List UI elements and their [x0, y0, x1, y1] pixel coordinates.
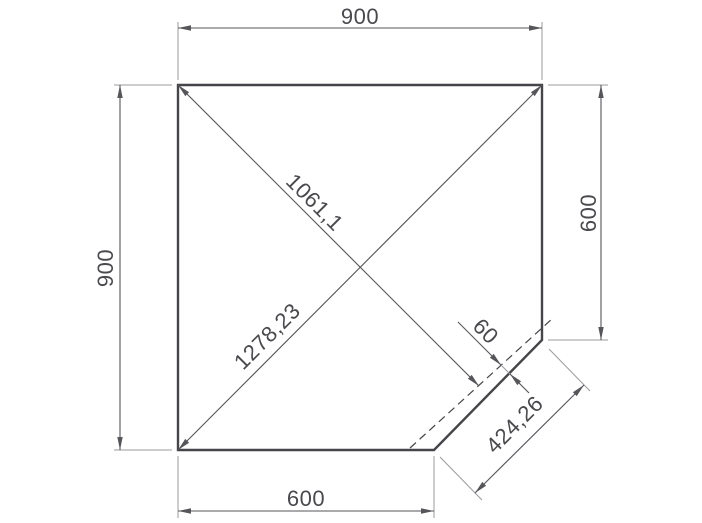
dim-left-height-label: 900 [93, 249, 118, 287]
extension-line [549, 349, 590, 391]
arrowhead [117, 437, 122, 450]
dim-chamfer-offset: 60 [458, 313, 529, 393]
arrowhead [178, 25, 191, 30]
arrowhead [573, 383, 586, 396]
drawing-page: 900 900 600 600 [0, 0, 702, 523]
arrowhead [473, 482, 486, 495]
arrowhead [468, 375, 481, 388]
dim-chamfer-offset-label: 60 [468, 313, 504, 349]
arrowhead [421, 508, 434, 513]
dimension-line [178, 85, 479, 386]
part-outline [178, 85, 553, 450]
technical-drawing-canvas: 900 900 600 600 [0, 0, 702, 523]
arrowhead [529, 25, 542, 30]
dim-right-height-label: 600 [576, 194, 601, 232]
arrowhead [508, 372, 521, 385]
dim-diagonal-full-label: 1278,23 [229, 298, 305, 374]
extension-line [440, 457, 482, 500]
arrowhead [117, 85, 122, 98]
arrowhead [598, 327, 603, 340]
dim-chamfer-length-label: 424,26 [481, 391, 548, 458]
dim-bottom-width: 600 [178, 456, 434, 518]
dim-diagonal-to-chamfer: 1061,1 [176, 83, 481, 388]
arrowhead [178, 508, 191, 513]
dim-top-width-label: 900 [341, 4, 379, 29]
dim-right-height: 600 [548, 85, 608, 340]
dim-top-width: 900 [178, 4, 542, 80]
dim-left-height: 900 [93, 85, 172, 450]
dim-bottom-width-label: 600 [287, 486, 325, 511]
arrowhead [490, 354, 503, 367]
dim-diagonal-to-chamfer-label: 1061,1 [281, 168, 348, 235]
dim-chamfer-length: 424,26 [440, 349, 590, 500]
dimension-line-gap-segment [501, 365, 510, 374]
arrowhead [598, 85, 603, 98]
